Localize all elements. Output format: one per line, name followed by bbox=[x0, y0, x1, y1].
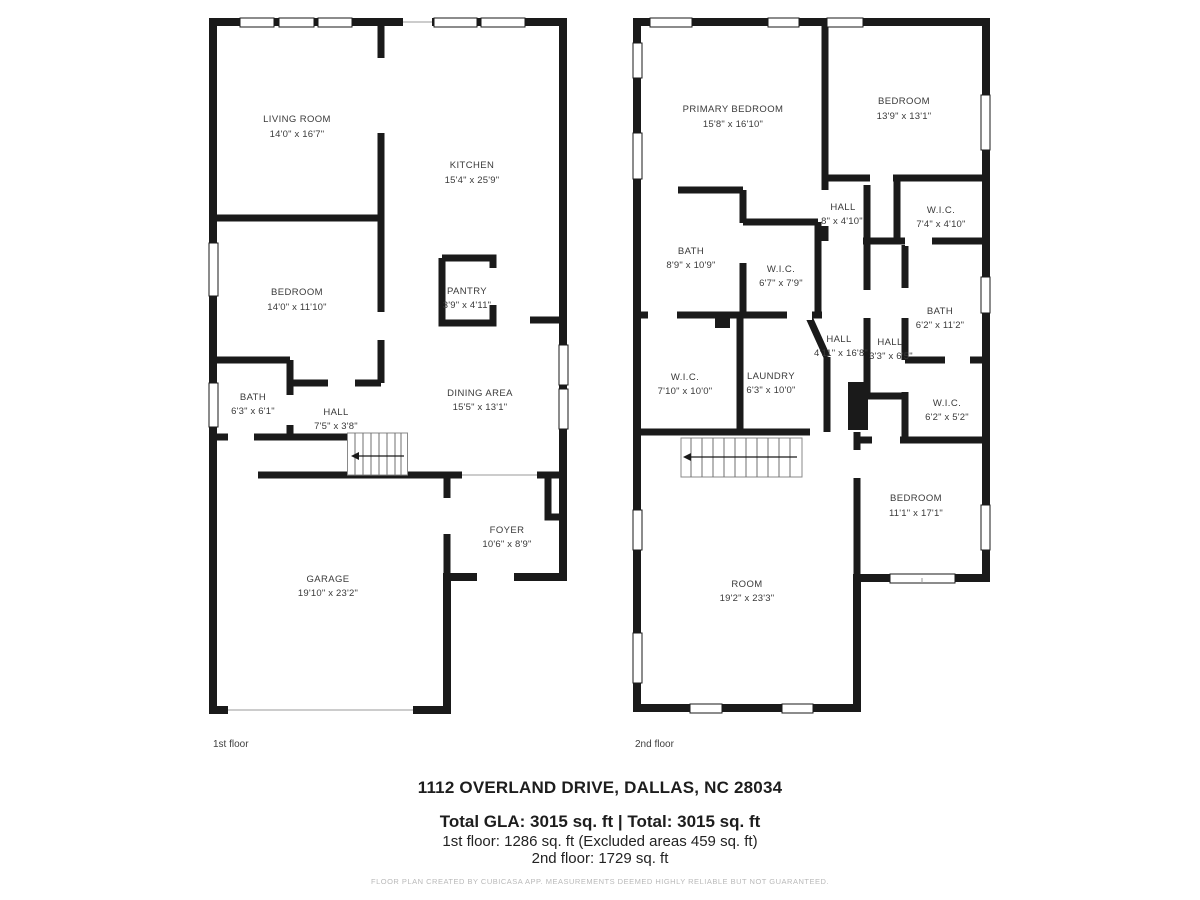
room-label-bath-right: BATH bbox=[927, 306, 953, 317]
floor1-area: 1st floor: 1286 sq. ft (Excluded areas 4… bbox=[0, 833, 1200, 850]
room-label-primary-bedroom: PRIMARY BEDROOM bbox=[683, 104, 784, 115]
floor1-walls bbox=[213, 22, 563, 710]
floor1-stairs bbox=[348, 433, 408, 475]
room-dims-foyer: 10'6" x 8'9" bbox=[482, 539, 531, 550]
room-dims-living: 14'0" x 16'7" bbox=[270, 129, 325, 140]
room-dims-hall-main: 4'11" x 16'8" bbox=[814, 348, 868, 359]
floorplan-page: LIVING ROOM 14'0" x 16'7" KITCHEN 15'4" … bbox=[0, 0, 1200, 900]
property-address: 1112 OVERLAND DRIVE, DALLAS, NC 28034 bbox=[0, 778, 1200, 798]
room-label-laundry: LAUNDRY bbox=[747, 371, 795, 382]
total-gla: Total GLA: 3015 sq. ft | Total: 3015 sq.… bbox=[0, 812, 1200, 832]
floor2-area: 2nd floor: 1729 sq. ft bbox=[0, 850, 1200, 867]
floor1-plan: LIVING ROOM 14'0" x 16'7" KITCHEN 15'4" … bbox=[209, 17, 568, 750]
floor2-stairs bbox=[681, 438, 802, 477]
room-label-room: ROOM bbox=[731, 579, 762, 590]
floor1-caption: 1st floor bbox=[213, 739, 249, 750]
room-label-bath: BATH bbox=[240, 392, 266, 403]
floor2-labels: PRIMARY BEDROOM 15'8" x 16'10" BEDROOM 1… bbox=[658, 96, 969, 604]
room-label-bedroom: BEDROOM bbox=[271, 287, 323, 298]
room-dims-wic-mid: 6'7" x 7'9" bbox=[759, 278, 803, 289]
room-dims-hall-top: 8" x 4'10" bbox=[821, 216, 863, 227]
room-dims-bath: 6'3" x 6'1" bbox=[231, 406, 275, 417]
room-dims-wic-top: 7'4" x 4'10" bbox=[916, 219, 965, 230]
floor2-walls bbox=[637, 22, 986, 708]
room-dims-pantry: 3'9" x 4'11" bbox=[443, 300, 492, 311]
room-dims-room: 19'2" x 23'3" bbox=[720, 593, 775, 604]
room-label-foyer: FOYER bbox=[490, 525, 525, 536]
floor2-windows bbox=[633, 18, 990, 713]
room-dims-hall-right: 3'3" x 6'5" bbox=[869, 351, 913, 362]
room-label-wic-top: W.I.C. bbox=[927, 205, 955, 216]
room-label-hall-top: HALL bbox=[830, 202, 855, 213]
room-dims-bath-right: 6'2" x 11'2" bbox=[916, 320, 965, 331]
room-dims-bath-top: 8'9" x 10'9" bbox=[666, 260, 715, 271]
room-label-garage: GARAGE bbox=[306, 574, 349, 585]
room-dims-bedroom-br: 11'1" x 17'1" bbox=[889, 508, 943, 519]
room-dims-bedroom-tr: 13'9" x 13'1" bbox=[877, 111, 932, 122]
floor1-windows bbox=[209, 18, 568, 429]
room-label-dining: DINING AREA bbox=[447, 388, 513, 399]
room-label-bedroom-tr: BEDROOM bbox=[878, 96, 930, 107]
room-label-wic-mid: W.I.C. bbox=[767, 264, 795, 275]
room-dims-wic-left: 7'10" x 10'0" bbox=[658, 386, 713, 397]
room-label-wic-right: W.I.C. bbox=[933, 398, 961, 409]
room-label-wic-left: W.I.C. bbox=[671, 372, 699, 383]
room-label-bath-top: BATH bbox=[678, 246, 704, 257]
room-dims-dining: 15'5" x 13'1" bbox=[453, 402, 508, 413]
floorplan-canvas: LIVING ROOM 14'0" x 16'7" KITCHEN 15'4" … bbox=[0, 0, 1200, 900]
room-dims-kitchen: 15'4" x 25'9" bbox=[445, 175, 500, 186]
room-label-hall-main: HALL bbox=[826, 334, 851, 345]
room-label-hall-right: HALL bbox=[877, 337, 902, 348]
room-dims-laundry: 6'3" x 10'0" bbox=[746, 385, 795, 396]
floor2-plan: PRIMARY BEDROOM 15'8" x 16'10" BEDROOM 1… bbox=[633, 18, 990, 750]
disclaimer-text: FLOOR PLAN CREATED BY CUBICASA APP. MEAS… bbox=[0, 877, 1200, 886]
room-dims-hall: 7'5" x 3'8" bbox=[314, 421, 358, 432]
floor2-caption: 2nd floor bbox=[635, 739, 675, 750]
room-dims-wic-right: 6'2" x 5'2" bbox=[925, 412, 969, 423]
room-label-bedroom-br: BEDROOM bbox=[890, 493, 942, 504]
room-label-hall: HALL bbox=[323, 407, 348, 418]
room-label-living: LIVING ROOM bbox=[263, 114, 331, 125]
room-dims-bedroom: 14'0" x 11'10" bbox=[267, 302, 326, 313]
room-label-kitchen: KITCHEN bbox=[450, 160, 495, 171]
room-dims-primary-bedroom: 15'8" x 16'10" bbox=[703, 119, 763, 130]
room-dims-garage: 19'10" x 23'2" bbox=[298, 588, 358, 599]
room-label-pantry: PANTRY bbox=[447, 286, 487, 297]
